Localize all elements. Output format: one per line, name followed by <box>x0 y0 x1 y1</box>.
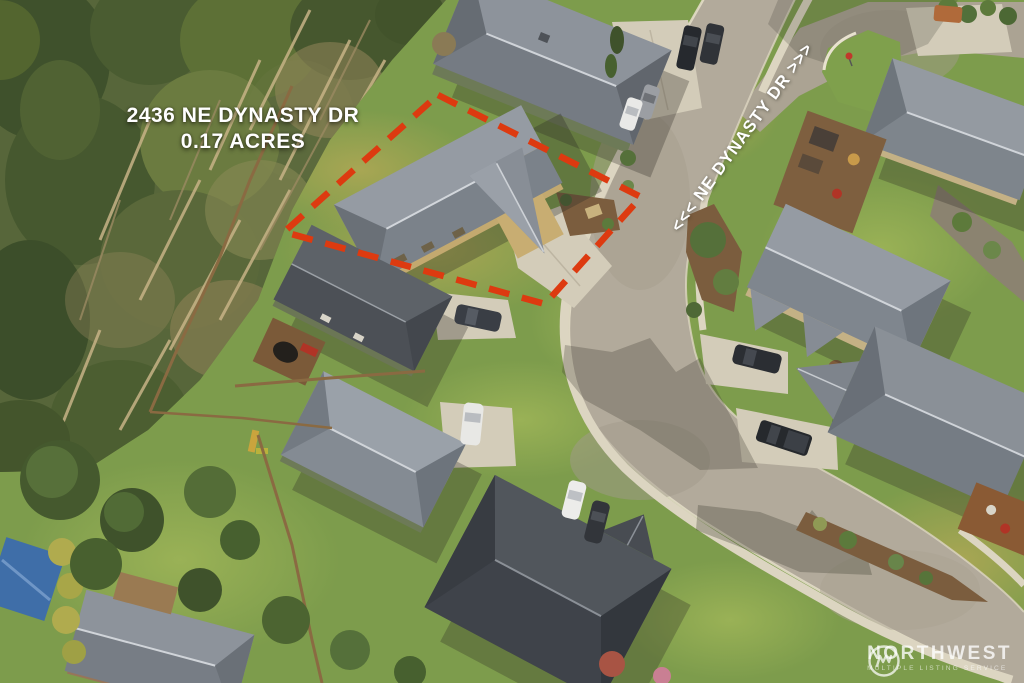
utility-vehicle <box>933 5 962 23</box>
address-label: 2436 NE DYNASTY DR 0.17 ACRES <box>118 103 368 155</box>
aerial-photo: 2436 NE DYNASTY DR 0.17 ACRES <<< NE DYN… <box>0 0 1024 683</box>
acreage-line: 0.17 ACRES <box>118 129 368 155</box>
address-line1: 2436 NE DYNASTY DR <box>118 103 368 129</box>
nwmls-m-logo-icon <box>867 644 901 678</box>
mls-watermark: NORTHWEST MULTIPLE LISTING SERVICE <box>867 644 1012 673</box>
